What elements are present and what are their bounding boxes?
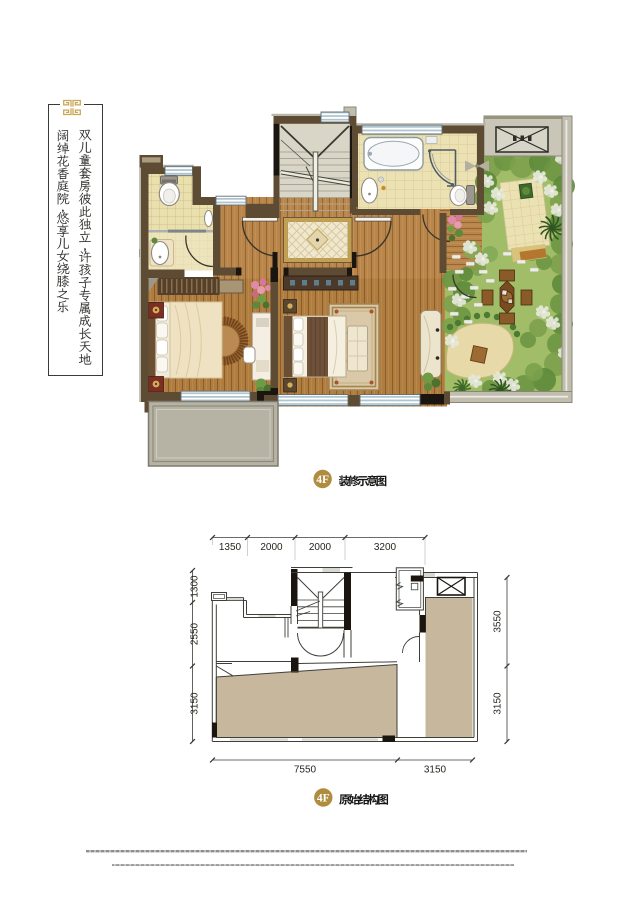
svg-text:3150: 3150 <box>190 692 201 715</box>
svg-text:7550: 7550 <box>294 765 317 776</box>
svg-text:3550: 3550 <box>493 610 504 633</box>
svg-text:2000: 2000 <box>309 542 332 553</box>
svg-text:3150: 3150 <box>493 692 504 715</box>
svg-text:3200: 3200 <box>374 542 397 553</box>
svg-text:4F: 4F <box>316 474 329 486</box>
svg-text:2550: 2550 <box>190 622 201 645</box>
svg-text:1300: 1300 <box>190 575 201 598</box>
svg-text:2000: 2000 <box>260 542 283 553</box>
svg-text:3150: 3150 <box>424 765 447 776</box>
svg-text:4F: 4F <box>317 793 330 805</box>
svg-text:1350: 1350 <box>219 542 242 553</box>
